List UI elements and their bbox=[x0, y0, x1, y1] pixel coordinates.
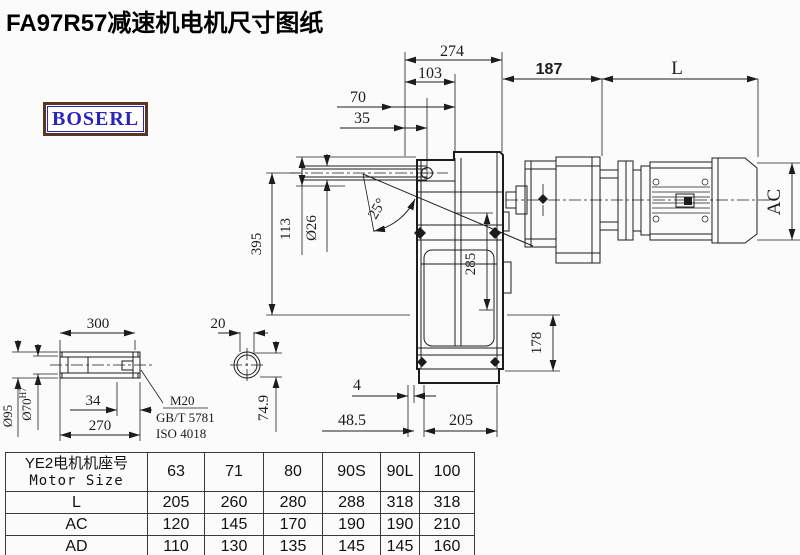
swing-angle: 25° bbox=[363, 174, 533, 246]
col-header: 90S bbox=[323, 453, 381, 492]
table-row-AD: AD 110 130 135 145 145 160 bbox=[6, 536, 475, 555]
dim-270-label: 270 bbox=[89, 418, 112, 434]
thread-spec-gbt: GB/T 5781 bbox=[156, 410, 215, 425]
mount-hole bbox=[417, 357, 427, 367]
dim-20-label: 20 bbox=[211, 316, 226, 332]
dim-dia70H7-label: Ø70H7 bbox=[18, 387, 34, 421]
cell: 160 bbox=[420, 536, 475, 555]
dim-AC-label: AC bbox=[764, 189, 785, 215]
left-dimensions: 395 113 Ø26 285 178 bbox=[249, 154, 560, 371]
dim-dia95-label: Ø95 bbox=[0, 405, 15, 427]
cell: 205 bbox=[148, 492, 205, 514]
cell: 210 bbox=[420, 514, 475, 536]
dim-395-label: 395 bbox=[249, 233, 265, 256]
dim-300-label: 300 bbox=[87, 316, 110, 332]
row-label: AD bbox=[6, 536, 148, 555]
cell: 170 bbox=[264, 514, 323, 536]
hollow-shaft-detail: 300 Ø95 Ø70H7 34 270 M20 GB/T 5781 bbox=[0, 316, 215, 441]
table-header-row: YE2电机机座号 Motor Size 63 71 80 90S 90L 100 bbox=[6, 453, 475, 492]
row-label: AC bbox=[6, 514, 148, 536]
motor-size-table: YE2电机机座号 Motor Size 63 71 80 90S 90L 100… bbox=[5, 452, 475, 555]
cell: 110 bbox=[148, 536, 205, 555]
input-shaft bbox=[290, 166, 448, 180]
top-dimensions: 274 103 70 35 187 L bbox=[337, 43, 758, 166]
col-header: 90L bbox=[381, 453, 420, 492]
cell: 280 bbox=[264, 492, 323, 514]
cell: 190 bbox=[381, 514, 420, 536]
dim-4-label: 4 bbox=[353, 377, 361, 394]
cell: 145 bbox=[381, 536, 420, 555]
r57-reducer bbox=[506, 157, 618, 263]
dim-70-label: 70 bbox=[350, 89, 366, 106]
shaft-section-detail: 20 74.9 bbox=[211, 316, 283, 432]
dim-74_9-label: 74.9 bbox=[256, 395, 272, 421]
table-corner-cell: YE2电机机座号 Motor Size bbox=[6, 453, 148, 492]
dim-dia26-label: Ø26 bbox=[304, 215, 320, 241]
cell: 145 bbox=[323, 536, 381, 555]
cell: 120 bbox=[148, 514, 205, 536]
col-header: 80 bbox=[264, 453, 323, 492]
mount-hole bbox=[490, 357, 500, 367]
dim-205-label: 205 bbox=[449, 412, 473, 429]
cell: 135 bbox=[264, 536, 323, 555]
fan-cowl bbox=[712, 158, 757, 243]
cell: 145 bbox=[205, 514, 264, 536]
row-label: L bbox=[6, 492, 148, 514]
dim-285-label: 285 bbox=[463, 253, 479, 276]
technical-drawing: 25° bbox=[0, 0, 800, 450]
dim-178-label: 178 bbox=[529, 332, 545, 355]
col-header: 71 bbox=[205, 453, 264, 492]
dim-35-label: 35 bbox=[354, 110, 370, 127]
col-header: 100 bbox=[420, 453, 475, 492]
bottom-dimensions: 4 48.5 205 bbox=[322, 377, 497, 437]
ac-dimension: AC bbox=[757, 163, 800, 240]
dim-274-label: 274 bbox=[440, 43, 464, 60]
mount-hole bbox=[414, 227, 426, 239]
cell: 318 bbox=[420, 492, 475, 514]
col-header: 63 bbox=[148, 453, 205, 492]
dim-25deg-label: 25° bbox=[365, 196, 389, 222]
cell: 260 bbox=[205, 492, 264, 514]
drawing-page: FA97R57减速机电机尺寸图纸 BOSERL bbox=[0, 0, 800, 555]
corner-label-cn: YE2电机机座号 bbox=[6, 455, 147, 472]
mount-hole bbox=[489, 227, 501, 239]
thread-spec-iso: ISO 4018 bbox=[156, 426, 206, 441]
dim-103-label: 103 bbox=[418, 65, 442, 82]
table-row-L: L 205 260 280 288 318 318 bbox=[6, 492, 475, 514]
cell: 130 bbox=[205, 536, 264, 555]
thread-spec-m20: M20 bbox=[170, 393, 195, 408]
table-row-AC: AC 120 145 170 190 190 210 bbox=[6, 514, 475, 536]
cell: 318 bbox=[381, 492, 420, 514]
corner-label-en: Motor Size bbox=[6, 473, 147, 489]
dim-L-label: L bbox=[671, 58, 683, 79]
dim-48_5-label: 48.5 bbox=[338, 412, 366, 429]
dim-34-label: 34 bbox=[86, 393, 102, 409]
cell: 288 bbox=[323, 492, 381, 514]
dim-187-label: 187 bbox=[536, 61, 563, 78]
cell: 190 bbox=[323, 514, 381, 536]
dim-113-label: 113 bbox=[278, 218, 294, 240]
